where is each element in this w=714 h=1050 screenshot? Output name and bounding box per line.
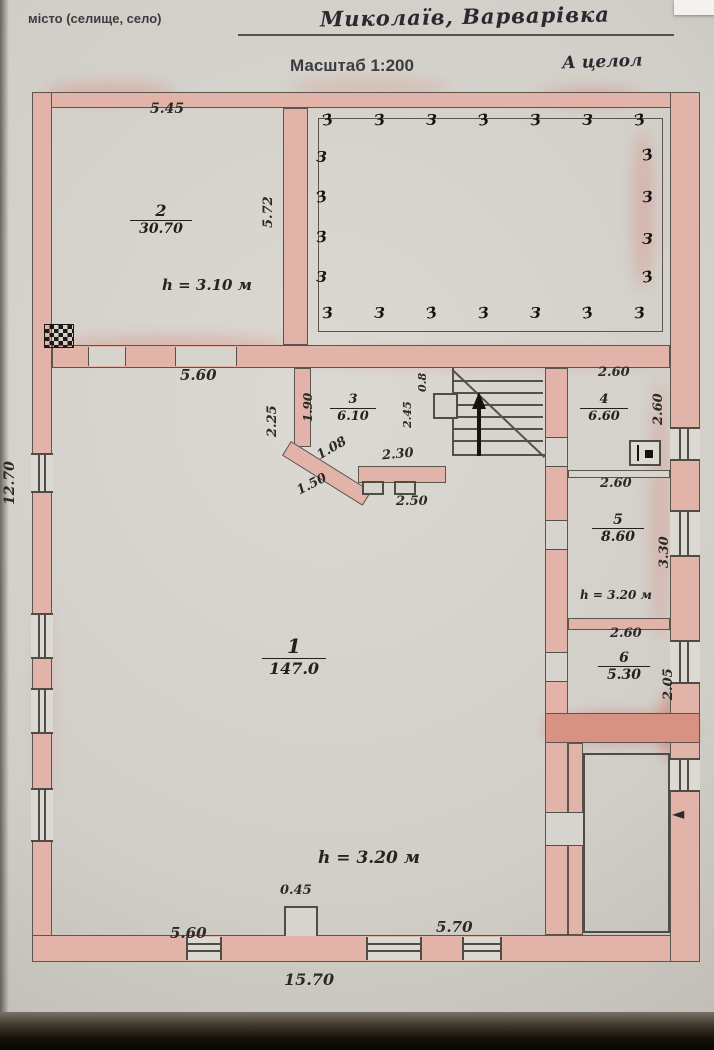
room6-number: 6 [598,650,650,667]
window-icon [366,937,422,960]
dim-room3-width-outer: 2.50 [396,495,428,508]
room2-number: 2 [130,202,192,221]
window-icon [31,788,53,842]
window-icon [670,427,700,461]
hatch-mark-icon: З [477,305,490,321]
room5-area: 8.60 [592,529,644,547]
dim-room5-right: 3.30 [658,536,671,568]
stair-up-arrow-head [472,392,486,409]
niche-box [433,393,458,419]
hatch-mark-icon: З [632,112,646,129]
wall-below-room6 [545,713,700,743]
door-opening [546,652,567,682]
stair-tread [453,404,543,406]
hatch-mark-icon: З [315,229,328,245]
hatch-mark-icon: З [642,232,653,247]
stair-diagonal-line [452,369,545,458]
room2-area: 30.70 [130,221,192,239]
hatch-mark-icon: З [320,112,334,129]
photo-edge-bottom [0,1012,714,1050]
dim-room3-left-inner: 1.90 [302,393,314,422]
hatch-mark-icon: З [316,150,327,165]
room1-area: 147.0 [262,659,326,679]
window-icon [462,937,502,960]
hatch-mark-icon: З [582,113,593,128]
dim-niche-side: 2.45 [402,401,413,428]
dim-room6-top: 2.60 [610,627,642,640]
room1-number: 1 [262,635,326,659]
panel-icon-dot [645,450,653,458]
stair-up-arrow [477,406,481,456]
veranda-room-border [318,118,663,332]
hatch-mark-icon: З [641,189,654,205]
door-opening [546,520,567,550]
stair-wall-line [452,454,545,456]
dim-room3-width: 2.30 [381,447,414,463]
wall-room2-right [283,108,308,345]
dim-bottom-right: 5.70 [436,920,473,935]
room5-label: 5 8.60 [592,512,644,547]
dim-bottom-bump: 0.45 [280,884,312,897]
window-icon [31,688,53,734]
dim-room3-diag-b: 1.50 [295,472,329,498]
room1-label: 1 147.0 [262,635,326,679]
room3-number: 3 [330,393,376,409]
photo-edge-left [0,0,9,1050]
hatch-mark-icon: З [316,270,327,285]
floor-plan: ◄ [0,0,714,1050]
door-opening [88,347,126,366]
window-icon [670,510,700,557]
dim-hall-width: 5.60 [180,368,217,383]
door-post [394,481,416,495]
entrance-arrow-icon: ◄ [672,804,684,823]
stove-icon [44,324,74,348]
stair-tread [453,416,543,418]
chimney-bump [284,906,318,936]
window-icon [31,453,53,493]
hatch-mark-icon: З [374,306,385,321]
room1-height-note: h = 3.20 м [318,848,420,868]
room6-label: 6 5.30 [598,650,650,685]
dim-room3-diag-a: 1.08 [315,435,349,462]
stair-tread [453,392,543,394]
dim-room5-top: 2.60 [600,477,632,490]
room4-label: 4 6.60 [580,393,628,425]
room5-height-note: h = 3.20 м [580,588,652,602]
door-opening [546,812,584,846]
dim-room2-right: 5.72 [262,196,275,228]
room4-number: 4 [580,393,628,409]
room6-area: 5.30 [598,667,650,685]
room2-height-note: h = 3.10 м [162,276,252,294]
panel-icon-bar [637,445,639,461]
dim-bottom-total: 15.70 [284,972,334,988]
hatch-mark-icon: З [426,113,437,128]
window-icon [31,613,53,659]
hatch-mark-icon: З [530,306,541,321]
panel-icon [629,440,661,466]
hatch-mark-icon: З [529,112,542,128]
window-icon [670,758,700,792]
room2-label: 2 30.70 [130,202,192,239]
corner-paper-tab [674,0,714,15]
room3-label: 3 6.10 [330,393,376,425]
room3-area: 6.10 [330,409,376,425]
wall-mid-horizontal [52,345,670,368]
wall-outer-top [32,92,700,108]
dim-room4-right: 2.60 [652,393,665,425]
dim-bottom-left: 5.60 [170,926,207,941]
hatch-mark-icon: З [373,112,386,128]
door-opening [546,437,567,467]
hatch-mark-icon: З [633,305,646,321]
room5-number: 5 [592,512,644,529]
dim-niche-top: 0.8 [417,373,428,392]
hatch-mark-icon: З [321,305,334,321]
room4-area: 6.60 [580,409,628,425]
dim-room4-top: 2.60 [598,366,630,379]
dim-room6-right: 2.05 [662,668,675,700]
door-opening [175,347,237,366]
porch-room-border [583,753,670,933]
door-post [362,481,384,495]
scanned-photo: місто (селище, село) Миколаїв, Варварівк… [0,0,714,1050]
dim-room3-left: 2.25 [266,405,279,437]
stair-tread [453,428,543,430]
dim-room2-top: 5.45 [150,102,184,116]
hatch-mark-icon: З [476,112,490,129]
